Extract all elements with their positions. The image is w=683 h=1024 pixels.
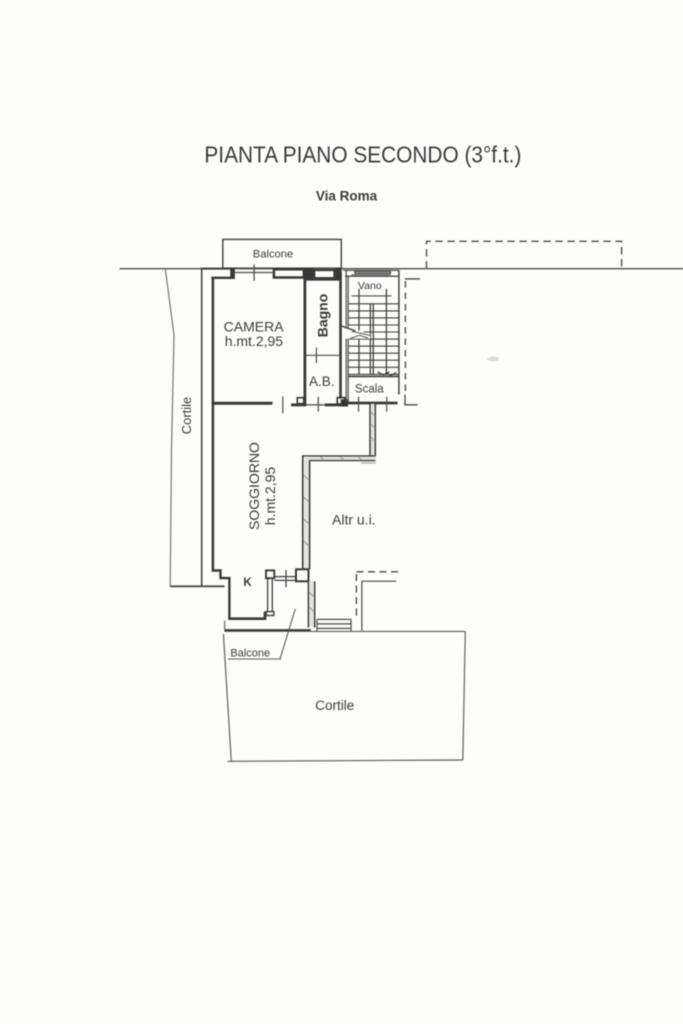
- svg-text:SOGGIORNO: SOGGIORNO: [246, 442, 262, 530]
- svg-text:Scala: Scala: [355, 383, 384, 395]
- svg-text:Altr u.i.: Altr u.i.: [332, 512, 376, 528]
- svg-text:Via Roma: Via Roma: [316, 189, 378, 204]
- svg-text:A.B.: A.B.: [309, 374, 335, 389]
- svg-text:CAMERA: CAMERA: [224, 318, 285, 334]
- svg-text:h.mt.2,95: h.mt.2,95: [225, 333, 284, 349]
- svg-text:K: K: [243, 577, 252, 589]
- svg-text:Vano: Vano: [358, 280, 382, 292]
- svg-text:Balcone: Balcone: [230, 647, 270, 659]
- svg-text:Bagno: Bagno: [314, 294, 330, 338]
- svg-text:Balcone: Balcone: [253, 248, 293, 260]
- svg-text:PIANTA PIANO SECONDO (3°f.t.): PIANTA PIANO SECONDO (3°f.t.): [204, 142, 521, 168]
- svg-text:Cortile: Cortile: [315, 698, 354, 713]
- svg-text:Cortile: Cortile: [179, 397, 194, 435]
- svg-text:h.mt.2,95: h.mt.2,95: [262, 467, 278, 526]
